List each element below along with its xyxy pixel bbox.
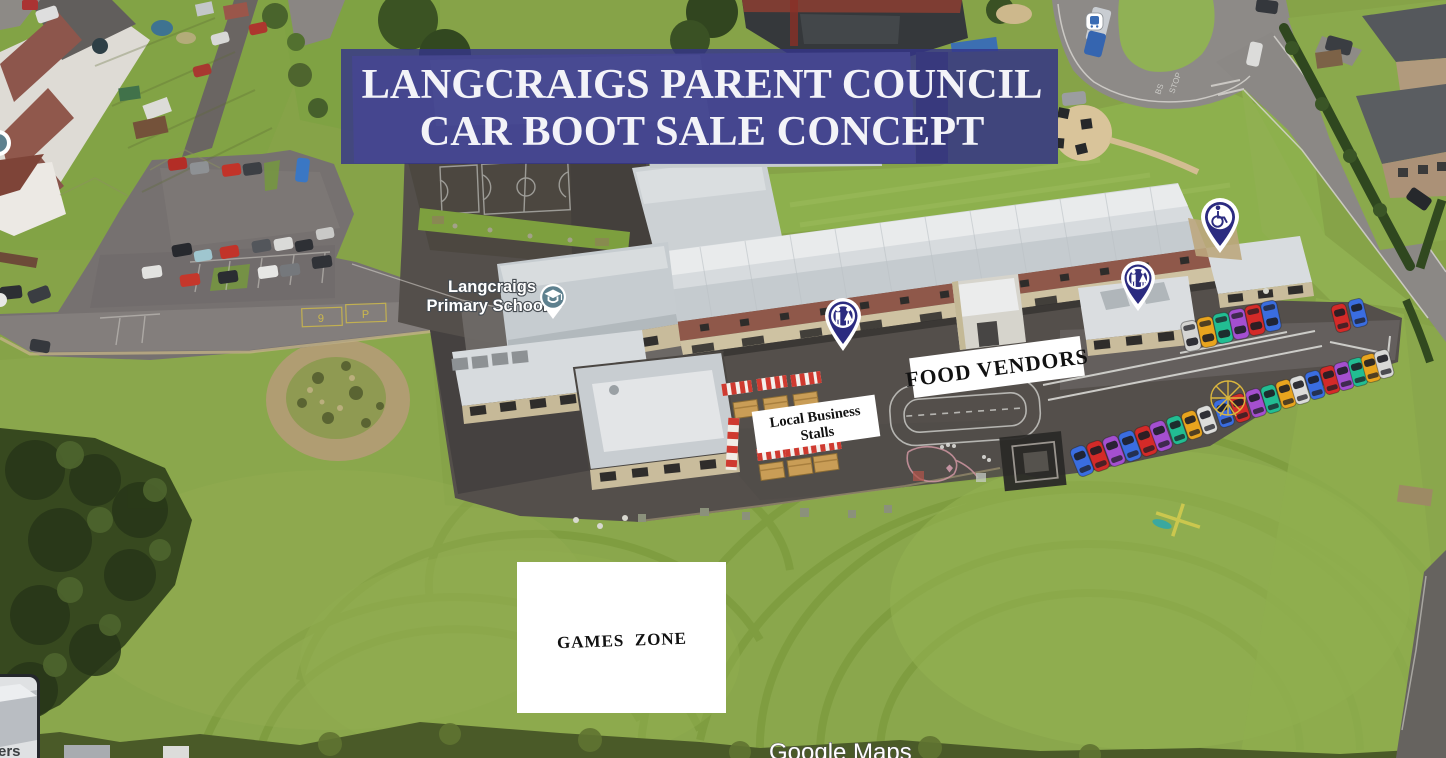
svg-text:Langcraigs: Langcraigs <box>448 278 536 296</box>
svg-text:LANGCRAIGS PARENT COUNCIL: LANGCRAIGS PARENT COUNCIL <box>362 61 1043 108</box>
svg-text:P: P <box>362 309 370 321</box>
svg-text:Primary School: Primary School <box>426 297 547 315</box>
svg-text:ers: ers <box>0 743 21 758</box>
svg-text:9: 9 <box>318 313 325 325</box>
svg-text:CAR BOOT SALE CONCEPT: CAR BOOT SALE CONCEPT <box>420 108 985 155</box>
svg-text:Google Maps: Google Maps <box>769 739 912 758</box>
